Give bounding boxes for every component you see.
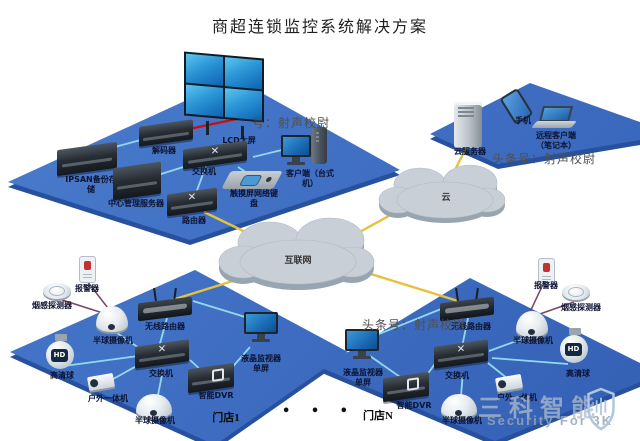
dvr-logo-icon xyxy=(407,378,419,392)
cloud-label: 云 xyxy=(436,190,456,203)
network-keyboard-label: 触摸屏网络键盘 xyxy=(227,189,281,209)
storeN-name-label: 门店N xyxy=(358,407,398,423)
diagram-canvas: 互联网 云 LCD大屏 解码器 ✕ 交换机 触摸屏网络键盘 ✕ 路由器 IPSA… xyxy=(0,0,640,441)
store1-dome-camera2-label: 半球摄像机 xyxy=(129,416,181,426)
client-desktop-tower xyxy=(312,127,327,164)
storeN-dome-camera-label: 半球摄像机 xyxy=(507,336,559,346)
store1-switch-label: 交换机 xyxy=(140,369,182,379)
store1-alarm-label: 报警器 xyxy=(67,284,107,294)
store1-dvr-label: 智能DVR xyxy=(194,391,238,401)
video-wall-screens xyxy=(184,52,264,123)
store1-smoke-detector-label: 烟感探测器 xyxy=(26,301,78,311)
watermark-right: 头条号：射声校尉 xyxy=(492,150,596,167)
decoder-label: 解码器 xyxy=(140,146,188,156)
storeN-lcd-monitor-device xyxy=(345,329,379,359)
storeN-hd-ball-camera-device: HD xyxy=(560,328,590,363)
storeN-dvr-label: 智能DVR xyxy=(392,401,436,411)
hd-badge: HD xyxy=(565,343,582,356)
ipsan-storage-label: IPSAN备份存储 xyxy=(64,175,118,195)
cloud-server-label: 云服务器 xyxy=(444,147,496,157)
storeN-switch-label: 交换机 xyxy=(436,371,478,381)
store1-alarm-device xyxy=(79,256,96,283)
page-title: 商超连锁监控系统解决方案 xyxy=(0,13,640,37)
client-desktop-label: 客户端（台式机） xyxy=(285,169,335,189)
video-wall-leg xyxy=(206,121,209,135)
store1-dome-camera-label: 半球摄像机 xyxy=(87,336,139,346)
shield-icon xyxy=(586,386,616,432)
watermark-top: 号：射声校尉 xyxy=(252,114,330,131)
hd-badge: HD xyxy=(51,349,68,362)
store1-name-label: 门店1 xyxy=(206,409,246,425)
client-desktop-monitor xyxy=(281,135,311,165)
center-router-label: 路由器 xyxy=(170,216,218,226)
storeN-smoke-detector-label: 烟感探测器 xyxy=(554,303,608,313)
storeN-alarm-label: 报警器 xyxy=(526,281,566,291)
store1-smoke-detector-device xyxy=(43,283,71,299)
stores-ellipsis: • • • xyxy=(282,404,356,419)
cloud-server-device xyxy=(454,102,482,148)
store1-wifi-router-device xyxy=(138,288,192,320)
store1-hd-ball-camera-label: 高清球 xyxy=(45,371,79,381)
center-switch-label: 交换机 xyxy=(181,167,227,177)
store1-lcd-monitor-label: 液晶监视器单屏 xyxy=(238,354,284,374)
store1-outdoor-camera-label: 户外一体机 xyxy=(83,394,133,404)
storeN-smoke-detector-device xyxy=(562,284,590,300)
laptop-label: 远程客户端（笔记本） xyxy=(529,131,583,151)
dvr-logo-icon xyxy=(212,369,224,383)
store1-wifi-router-label: 无线路由器 xyxy=(138,322,192,332)
storeN-hd-ball-camera-label: 高清球 xyxy=(561,369,595,379)
storeN-lcd-monitor-label: 液晶监视器单屏 xyxy=(340,368,386,388)
internet-cloud-label: 互联网 xyxy=(274,253,322,266)
management-server-label: 中心管理服务器 xyxy=(108,199,164,209)
store1-hd-ball-camera-device: HD xyxy=(46,334,76,369)
management-server-device xyxy=(113,162,161,201)
watermark-middle: 头条号：射声校尉 xyxy=(362,316,466,333)
store1-lcd-monitor-device xyxy=(244,312,278,342)
network-keyboard-device xyxy=(221,171,283,189)
laptop-device xyxy=(534,106,574,132)
